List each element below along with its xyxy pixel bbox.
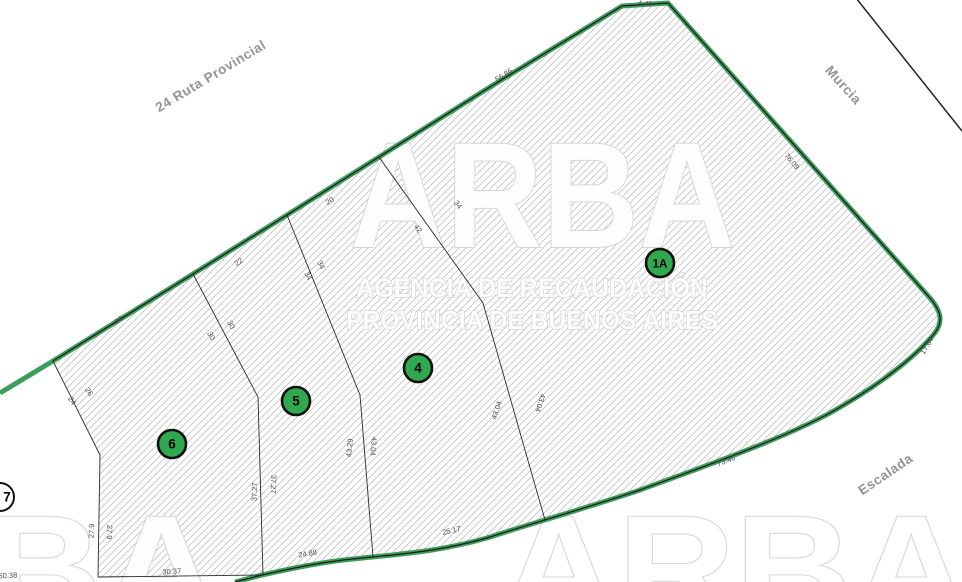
dimension-label: 43.04 xyxy=(368,436,379,455)
map-canvas[interactable]: ARBA AGENCIA DE RECAUDACIÓN PROVINCIA DE… xyxy=(0,0,962,582)
parcel-marker-4[interactable]: 4 xyxy=(404,354,432,382)
parcel-marker-1A[interactable]: 1A xyxy=(646,249,674,277)
cadastral-map-viewport[interactable]: ARBA AGENCIA DE RECAUDACIÓN PROVINCIA DE… xyxy=(0,0,962,582)
dimension-label: 30.37 xyxy=(162,566,181,576)
parcel-marker-label: 4 xyxy=(414,361,422,376)
parcel-marker-7[interactable]: 7 xyxy=(0,483,14,511)
street-label-escalada: Escalada xyxy=(855,451,915,498)
dimension-label: 60.38 xyxy=(0,571,17,581)
dimension-label: 27.9 xyxy=(105,525,115,540)
parcel-marker-5[interactable]: 5 xyxy=(282,387,310,415)
parcel-marker-label: 1A xyxy=(653,259,668,271)
street-label-murcia: Murcia xyxy=(822,63,864,108)
parcel-marker-label: 5 xyxy=(292,394,300,409)
street-label-24-ruta-provincial: 24 Ruta Provincial xyxy=(153,37,269,115)
parcel-marker-label: 7 xyxy=(3,490,11,505)
dimension-label: 27.9 xyxy=(87,523,97,538)
dimension-label: 4.47 xyxy=(638,0,653,9)
dimension-label: 43.29 xyxy=(344,438,355,457)
parcel-marker-label: 6 xyxy=(168,437,176,452)
parcel-marker-6[interactable]: 6 xyxy=(158,430,186,458)
murcia-road-line xyxy=(856,0,962,131)
dimension-label: 37.27 xyxy=(250,482,260,501)
dimension-label: 37.27 xyxy=(269,475,279,494)
